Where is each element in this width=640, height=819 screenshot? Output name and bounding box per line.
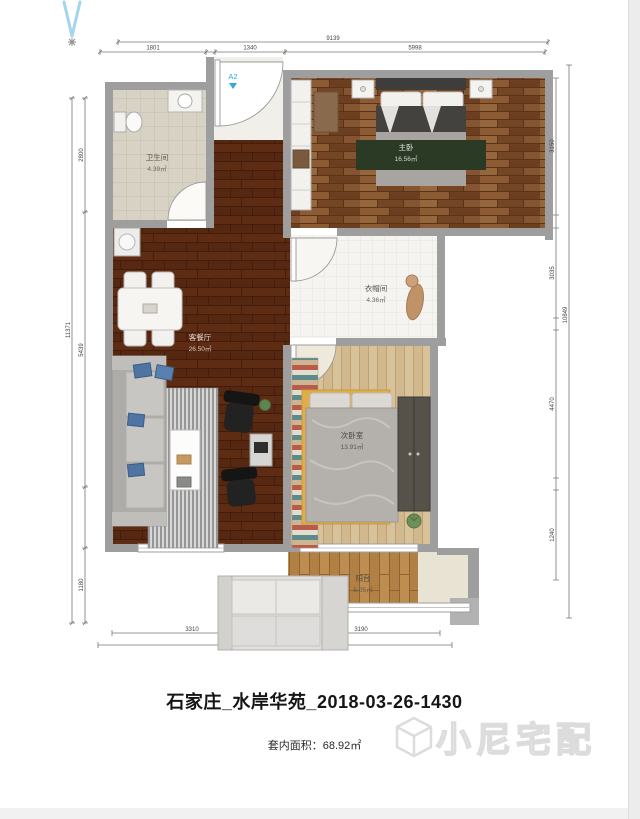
entry-door-label: A2 [228,72,237,81]
sofa [112,356,174,526]
dim-top-seg: 5998 [408,46,422,52]
sofa-armrest [112,512,166,526]
wall-master-left [283,78,291,238]
dim-top-seg: 1340 [243,46,257,52]
bottom-edge-strip [0,808,629,819]
wall-bedroom2-left [283,345,291,552]
dim-bottom-seg: 3190 [354,627,368,633]
master-bedroom-area: 16.56㎡ [395,154,418,163]
sofa-chaise [322,576,348,650]
green-rug [356,140,486,170]
floorplan-drawing: A2 [0,0,640,685]
headboard [376,78,466,90]
dim-right-seg: 3150 [550,139,556,153]
plan-area-caption: 套内面积：68.92㎡ [0,737,629,753]
sofa-back-cushion [232,616,276,646]
tray [177,455,191,464]
master-bedroom-label: 主卧 [399,142,414,152]
washing-machine [114,228,140,256]
bathroom-label: 卫生间 [146,152,169,162]
bench [314,92,338,132]
coffee-table [170,430,200,490]
wall-bathroom-bottom [105,220,167,228]
sectional-sofa [218,576,348,650]
cloakroom-area: 4.36㎡ [366,295,386,304]
bedroom2-plant [407,514,421,528]
wall-bathroom-top [105,82,213,90]
storage-box [293,150,309,168]
living-dining-area: 26.50㎡ [189,344,212,353]
dim-right-seg: 1240 [550,528,556,542]
second-bedroom-area: 13.91㎡ [341,442,364,451]
dim-bottom-seg: 3310 [185,627,199,633]
north-arrow-icon [64,2,80,46]
sofa-seat [232,580,276,614]
blue-pillow [133,363,152,378]
dim-right-seg: 3035 [550,266,556,280]
dim-right-seg: 4470 [550,397,556,411]
wall-entry-stub [206,57,214,87]
wall-bedroom2-right [430,345,438,552]
blue-pillow [127,463,144,477]
entry-door-leaf [215,60,220,126]
sofa-armrest [218,576,232,650]
toilet-bowl [126,112,142,132]
sofa-seat [276,580,320,614]
bathroom-area: 4.39㎡ [147,164,167,173]
dim-left-seg: 5439 [79,343,85,357]
sofa-back-cushion [276,616,320,646]
table-centerpiece [143,304,157,313]
pillow [352,393,392,409]
scrollbar[interactable] [628,0,640,819]
floorplan-page: A2 [0,0,640,819]
dim-left-seg: 2800 [79,148,85,162]
dim-top-seg: 1801 [146,46,160,52]
wall-master-right [545,70,553,240]
balcony-label: 阳台 [356,573,371,583]
wall-master-top [283,70,553,78]
pillow [310,393,350,409]
blue-pillow [127,413,144,427]
balcony-floor-side [418,552,468,604]
pillow [381,92,421,108]
dim-top-total: 9139 [326,36,340,42]
bedroom2-wardrobe [398,397,430,511]
pillow [423,92,463,108]
dim-right-total: 10849 [563,306,569,323]
cloakroom-label: 衣帽间 [365,283,388,293]
plan-title: 石家庄_水岸华苑_2018-03-26-1430 [0,688,629,714]
plant [260,400,271,411]
wall-cloakroom-right [437,232,445,345]
entry-corridor-floor [213,140,290,230]
second-bed [306,393,398,522]
living-dining-label: 客餐厅 [189,332,212,342]
wall-cloakroom-bottom [336,338,446,346]
sink-basin [178,94,192,108]
laptop [254,442,268,453]
dim-left-seg: 1180 [79,578,85,592]
dim-left-total: 11371 [66,321,72,338]
decor-item [177,477,191,487]
master-door-leaf [291,238,296,281]
balcony-area: 5.05㎡ [353,585,373,594]
second-bedroom-label: 次卧室 [341,430,364,440]
toilet-tank [114,112,126,132]
wall-bathroom-right [206,82,214,228]
blue-pillow [155,365,174,381]
